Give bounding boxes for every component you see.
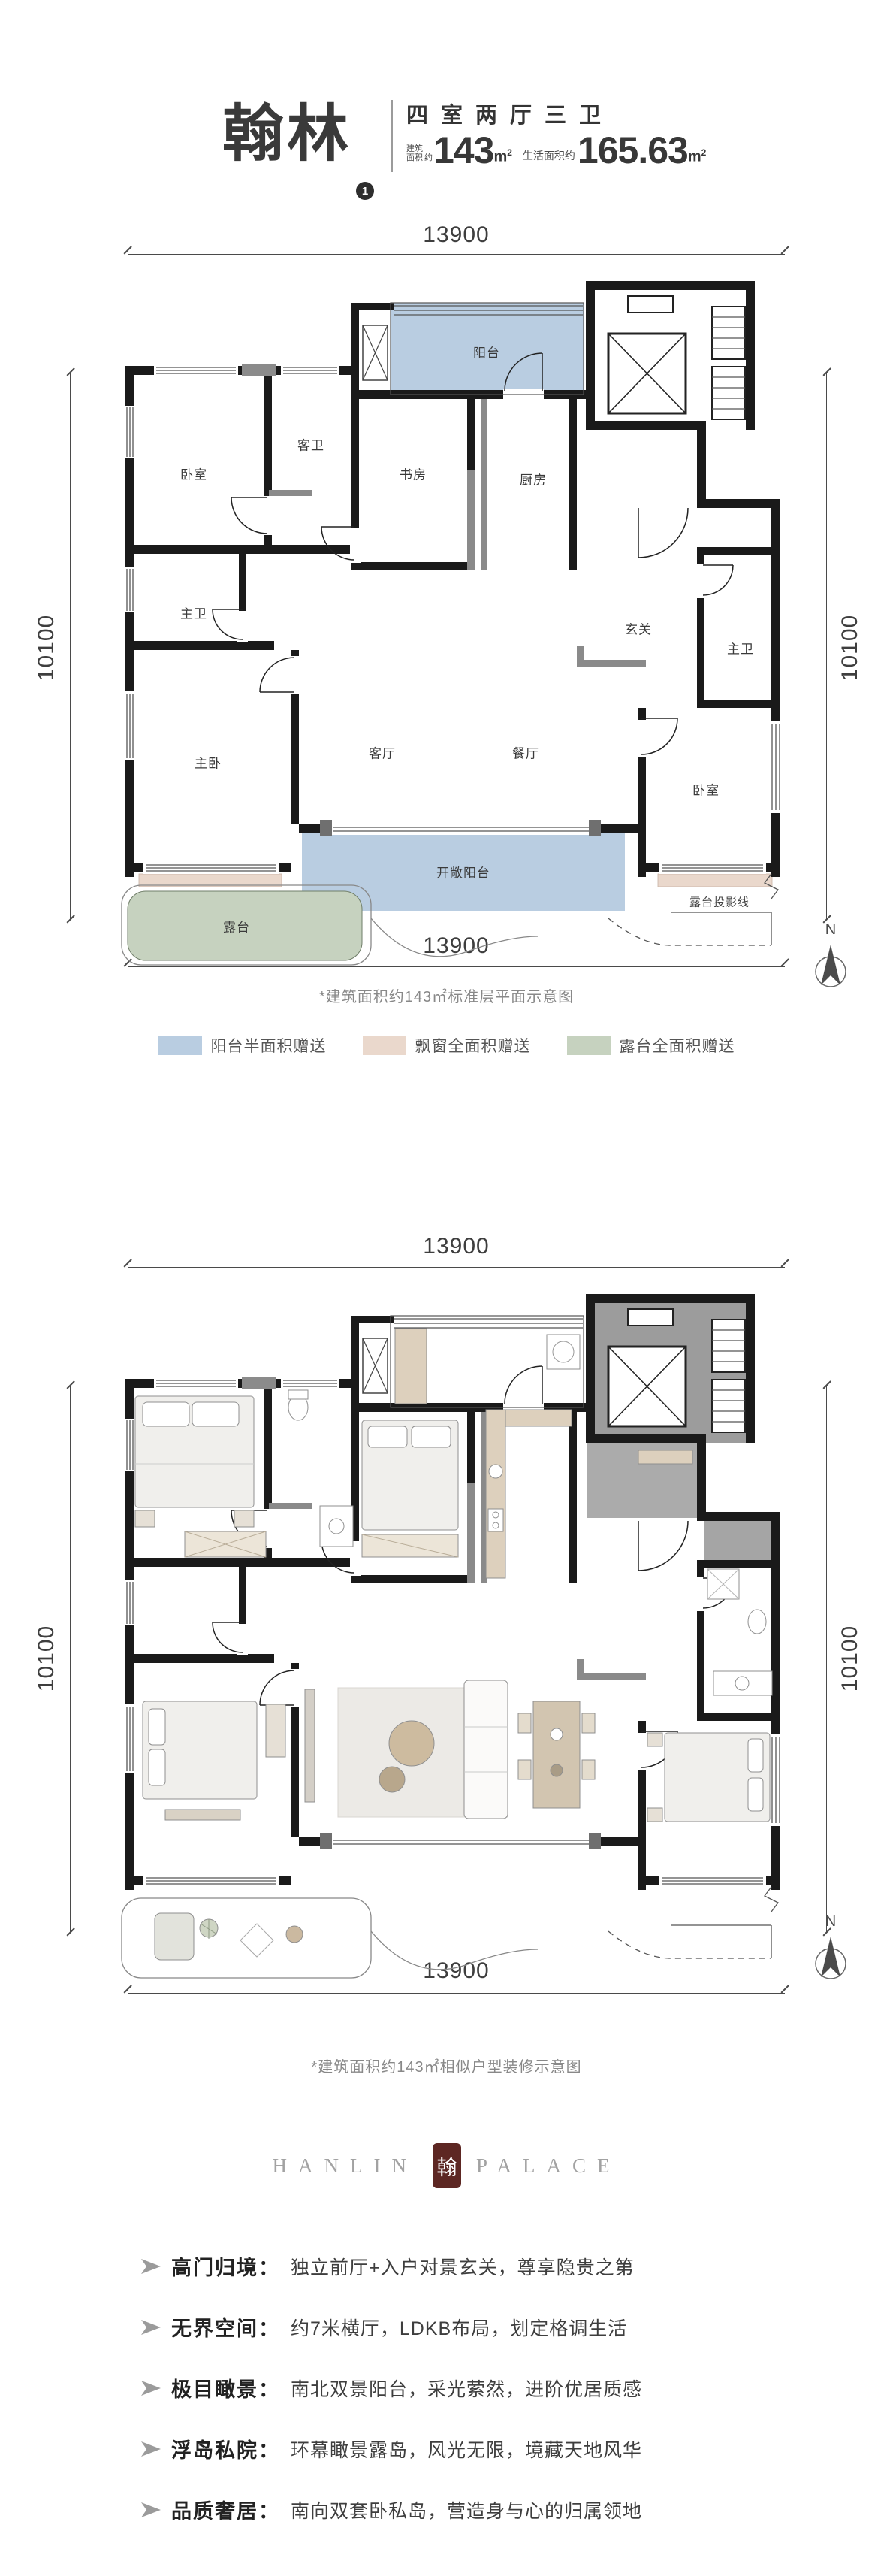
- plan2-dim-top-label: 13900: [128, 1234, 785, 1259]
- area-row: 建筑面积 约 143 m2 生活面积约 165.63 m2: [406, 134, 706, 168]
- floorplan-poster: 翰林 1 四室两厅三卫 建筑面积 约 143 m2 生活面积约 165.63 m…: [0, 0, 893, 2576]
- room-label-dining-room: 餐厅: [512, 743, 539, 762]
- area2-value: 165.63: [578, 134, 688, 168]
- room-label-study: 书房: [400, 464, 427, 483]
- bay-window-fill: [658, 874, 772, 887]
- logo-word-left: HANLIN: [272, 2154, 417, 2178]
- plan2-dim-left-label: 10100: [34, 1621, 59, 1696]
- room-label-kitchen: 厨房: [520, 470, 547, 488]
- plan1-dim-top-line: [128, 254, 785, 255]
- plan1-dim-left-line: [70, 372, 71, 919]
- logo-word-right: PALACE: [476, 2154, 621, 2178]
- plan1-dim-left-label: 10100: [34, 610, 59, 685]
- legend-item-terrace: 露台全面积赠送: [567, 1034, 735, 1057]
- compass-needle-icon: [813, 940, 849, 990]
- floor-plan-2-drawing: [113, 1283, 789, 1997]
- north-compass: N: [808, 1913, 853, 1985]
- brand-seal-icon: 翰: [433, 2143, 461, 2188]
- area1-unit: m2: [493, 147, 511, 168]
- area1-approx: 约: [424, 151, 433, 168]
- room-label-living-room: 客厅: [369, 743, 396, 762]
- room-label-master-bath-right: 主卫: [727, 639, 754, 658]
- room-label-terrace: 露台: [223, 917, 250, 936]
- room-label-bedroom-top-left: 卧室: [180, 464, 207, 483]
- legend: 阳台半面积赠送 飘窗全面积赠送 露台全面积赠送: [0, 1034, 893, 1057]
- legend-item-balcony: 阳台半面积赠送: [158, 1034, 327, 1057]
- feature-item: 无界空间： 约7米横厅，LDKB布局，划定格调生活: [141, 2312, 627, 2342]
- plan1-caption: *建筑面积约143㎡标准层平面示意图: [0, 984, 893, 1006]
- room-label-bedroom-right: 卧室: [692, 780, 720, 799]
- room-label-guest-bath: 客卫: [297, 435, 324, 454]
- feature-item: 浮岛私院： 环幕瞰景露岛，风光无限，境藏天地风华: [141, 2434, 642, 2463]
- unit-number-badge: 1: [356, 182, 374, 200]
- room-label-master-bedroom: 主卧: [195, 753, 222, 772]
- brand-logo: HANLIN 翰 PALACE: [0, 2143, 893, 2188]
- feature-item: 高门归境： 独立前厅+入户对景玄关，尊享隐贵之第: [141, 2251, 635, 2281]
- legend-swatch-bay-window: [363, 1036, 406, 1055]
- plan1-dim-right-label: 10100: [837, 610, 863, 685]
- legend-swatch-terrace: [567, 1036, 611, 1055]
- plan2-dim-left-line: [70, 1385, 71, 1932]
- room-label-balcony: 阳台: [473, 343, 500, 361]
- room-label-terrace-projection: 露台投影线: [689, 894, 750, 910]
- chevron-right-icon: [141, 2381, 161, 2396]
- room-label-master-bath-left: 主卫: [180, 603, 207, 622]
- page-title: 翰林: [222, 104, 351, 165]
- chevron-right-icon: [141, 2320, 161, 2335]
- room-label-open-balcony: 开敞阳台: [436, 863, 490, 881]
- area2-label: 生活面积约: [523, 148, 575, 168]
- plan2-caption: *建筑面积约143㎡相似户型装修示意图: [0, 2054, 893, 2076]
- area2-unit: m2: [688, 147, 706, 168]
- compass-needle-icon: [813, 1932, 849, 1982]
- plan2-dim-top-line: [128, 1267, 785, 1268]
- north-compass: N: [808, 921, 853, 993]
- north-letter: N: [808, 1913, 853, 1930]
- plan2-dim-right-line: [826, 1385, 827, 1932]
- chevron-right-icon: [141, 2441, 161, 2457]
- feature-item: 品质奢居： 南向双套卧私岛，营造身与心的归属领地: [141, 2495, 642, 2524]
- plan1-dim-top-label: 13900: [128, 222, 785, 248]
- plan2-dim-right-label: 10100: [837, 1621, 863, 1696]
- feature-item: 极目瞰景： 南北双景阳台，采光萦然，进阶优居质感: [141, 2373, 642, 2402]
- header-divider: [391, 100, 393, 172]
- north-letter: N: [808, 921, 853, 939]
- plan1-dim-right-line: [826, 372, 827, 919]
- area1-value: 143: [433, 134, 493, 168]
- chevron-right-icon: [141, 2259, 161, 2274]
- legend-item-bay-window: 飘窗全面积赠送: [363, 1034, 531, 1057]
- room-label-foyer: 玄关: [625, 619, 652, 638]
- chevron-right-icon: [141, 2502, 161, 2517]
- legend-swatch-balcony: [158, 1036, 202, 1055]
- area1-label: 建筑面积: [406, 144, 423, 168]
- layout-type: 四室两厅三卫: [406, 98, 614, 129]
